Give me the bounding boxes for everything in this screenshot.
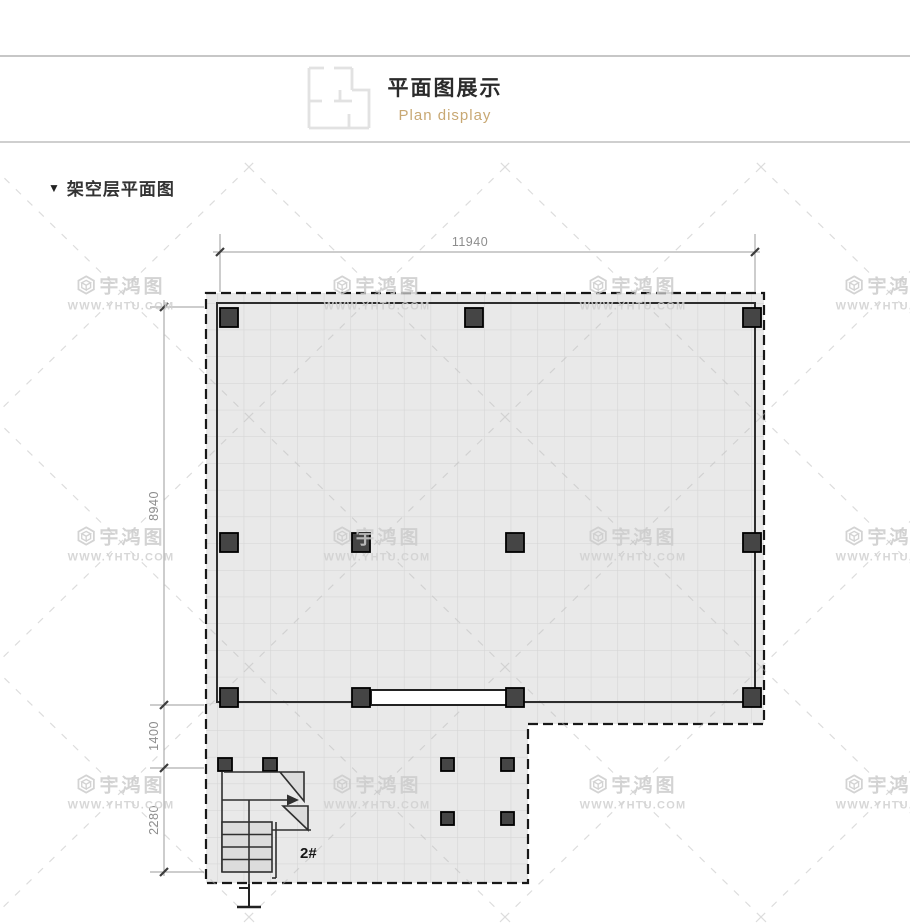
dim-top: 11940 — [452, 235, 488, 249]
small-column — [501, 812, 514, 825]
column — [220, 308, 238, 327]
dim-left-mid: 1400 — [147, 721, 161, 751]
small-column — [441, 812, 454, 825]
small-column — [441, 758, 454, 771]
column — [506, 688, 524, 707]
column — [743, 688, 761, 707]
dim-left-main: 8940 — [147, 491, 161, 521]
small-column — [263, 758, 277, 771]
stair-unit-label: 2# — [300, 845, 317, 862]
diagonal-watermark-lines — [0, 160, 910, 923]
column — [352, 688, 370, 707]
column — [506, 533, 524, 552]
page: 平面图展示 Plan display ▼ 架空层平面图 — [0, 0, 910, 923]
column — [220, 533, 238, 552]
dim-left-lower: 2280 — [147, 805, 161, 835]
column — [352, 533, 370, 552]
small-column — [501, 758, 514, 771]
column — [743, 533, 761, 552]
column — [220, 688, 238, 707]
floor-plan-drawing: 11940 8940 1400 2280 2# — [0, 0, 910, 923]
beam — [371, 690, 508, 705]
column — [465, 308, 483, 327]
column — [743, 308, 761, 327]
small-column — [218, 758, 232, 771]
